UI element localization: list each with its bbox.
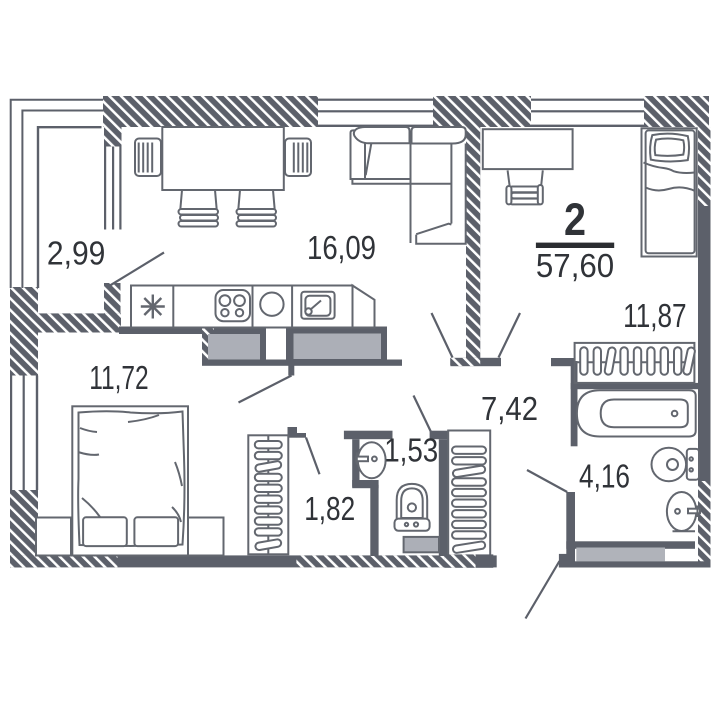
svg-text:1,53: 1,53 <box>384 432 438 469</box>
svg-text:11,72: 11,72 <box>89 359 149 396</box>
svg-text:57,60: 57,60 <box>536 247 614 284</box>
svg-text:2: 2 <box>564 194 586 245</box>
svg-text:16,09: 16,09 <box>307 229 376 266</box>
svg-text:1,82: 1,82 <box>304 490 355 527</box>
svg-text:11,87: 11,87 <box>623 297 687 334</box>
svg-text:4,16: 4,16 <box>579 458 630 495</box>
svg-text:2,99: 2,99 <box>47 235 106 272</box>
svg-text:7,42: 7,42 <box>481 390 538 427</box>
